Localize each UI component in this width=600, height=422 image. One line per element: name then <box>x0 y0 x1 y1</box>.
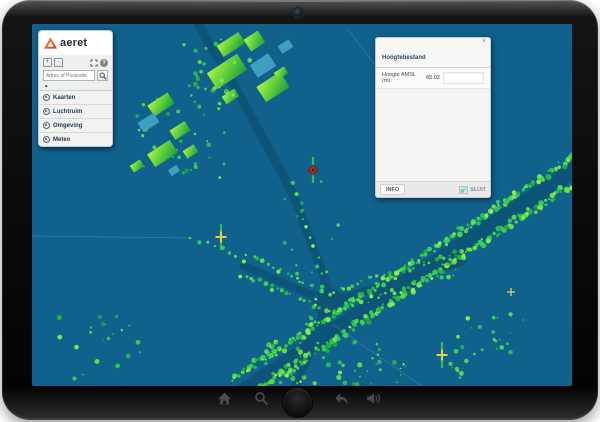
expander-icon <box>43 136 50 143</box>
zoom-in-button[interactable]: + <box>43 58 52 67</box>
collapse-arrow-icon[interactable]: ▲ <box>39 83 112 90</box>
sidebar-item-luchtruim[interactable]: Luchtruim <box>39 105 112 119</box>
popup-header: Hoogtebestand × <box>376 38 490 68</box>
expander-icon <box>43 94 50 101</box>
height-label: Hoogte AMSL (m): <box>382 72 426 84</box>
map-canvas[interactable] <box>32 24 572 386</box>
screen: aeret + - ? ▲ <box>32 24 572 386</box>
expander-icon <box>43 108 50 115</box>
help-icon[interactable]: ? <box>100 59 108 67</box>
height-field-row: Hoogte AMSL (m): 65.02 <box>376 68 490 89</box>
height-value: 65.02 <box>426 75 443 81</box>
expander-icon <box>43 122 50 129</box>
front-camera-icon <box>294 8 303 17</box>
physical-home-button[interactable] <box>283 388 312 417</box>
close-icon[interactable]: × <box>482 38 486 46</box>
sidebar-item-omgeving[interactable]: Omgeving <box>39 119 112 133</box>
height-input[interactable] <box>443 72 484 84</box>
popup-body <box>376 89 490 181</box>
back-icon[interactable] <box>334 391 349 405</box>
search-bar <box>39 69 112 83</box>
sidebar-item-label: Omgeving <box>53 123 82 129</box>
sidebar-item-label: Luchtruim <box>53 109 82 115</box>
logo-text: aeret <box>60 37 87 49</box>
search-input[interactable] <box>43 70 95 81</box>
volume-icon[interactable] <box>366 391 381 406</box>
tablet-frame: aeret + - ? ▲ <box>2 0 598 420</box>
sidebar-item-kaarten[interactable]: Kaarten <box>39 91 112 105</box>
sluit-button[interactable]: SLUIT <box>459 186 486 194</box>
home-icon[interactable] <box>217 391 232 406</box>
sidebar-item-label: Meteo <box>53 137 70 143</box>
search-icon <box>99 72 107 80</box>
sidebar-item-meteo[interactable]: Meteo <box>39 133 112 146</box>
search-button[interactable] <box>97 70 108 81</box>
height-info-popup: Hoogtebestand × Hoogte AMSL (m): 65.02 I… <box>375 37 491 198</box>
search-icon[interactable] <box>254 391 269 406</box>
zoom-out-button[interactable]: - <box>54 58 63 67</box>
popup-title: Hoogtebestand <box>382 55 426 61</box>
bezel-controls <box>2 387 598 420</box>
sidebar-panel: aeret + - ? ▲ <box>38 30 113 147</box>
map-toolbar: + - ? <box>39 55 112 69</box>
extent-icon[interactable] <box>90 59 98 67</box>
popup-footer: INFO SLUIT <box>376 181 490 197</box>
info-tab[interactable]: INFO <box>380 184 405 195</box>
sluit-label: SLUIT <box>470 187 486 193</box>
sidebar-menu: Kaarten Luchtruim Omgeving Meteo <box>39 90 112 146</box>
sidebar-item-label: Kaarten <box>53 95 75 101</box>
logo: aeret <box>39 31 112 55</box>
aeret-logo-icon <box>43 36 58 50</box>
window-icon <box>459 186 468 194</box>
